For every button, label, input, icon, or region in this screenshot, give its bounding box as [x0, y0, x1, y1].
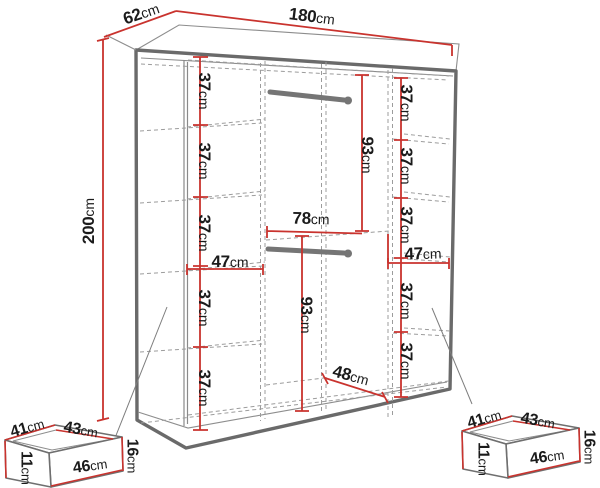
- label-right-gap-1: 37cm: [397, 85, 416, 122]
- label-height-200: 200cm: [79, 198, 98, 244]
- wardrobe-diagram: 62cm 180cm 200cm 37cm 37cm 37cm 37cm 37c…: [0, 0, 600, 488]
- drawer-right-label-16: 16cm: [580, 430, 597, 465]
- label-right-gap-3: 37cm: [397, 207, 416, 244]
- diagram-canvas: 62cm 180cm 200cm 37cm 37cm 37cm 37cm 37c…: [0, 0, 600, 488]
- label-left-width-47: 47cm: [212, 252, 249, 271]
- label-right-gap-4: 37cm: [397, 283, 416, 320]
- label-right-width-47: 47cm: [404, 243, 442, 263]
- dim-line-height-200: [97, 38, 109, 421]
- label-left-gap-1: 37cm: [195, 73, 214, 110]
- label-left-gap-2: 37cm: [195, 143, 214, 180]
- drawer-left-label-11: 11cm: [17, 451, 34, 485]
- drawer-right-label-11: 11cm: [474, 442, 491, 476]
- label-upper-hang-93: 93cm: [358, 137, 377, 174]
- label-left-gap-3: 37cm: [195, 215, 214, 252]
- drawer-left-label-16: 16cm: [123, 439, 140, 474]
- label-right-gap-2: 37cm: [397, 148, 416, 185]
- label-right-gap-5: 37cm: [397, 343, 416, 380]
- label-middle-width-78: 78cm: [292, 209, 329, 229]
- label-lower-hang-93: 93cm: [297, 297, 316, 334]
- depth-extension-line: [106, 35, 136, 50]
- drawer-right: 41cm 43cm 46cm 16cm 11cm: [462, 406, 597, 478]
- label-left-gap-5: 37cm: [195, 370, 214, 407]
- label-left-gap-4: 37cm: [195, 290, 214, 327]
